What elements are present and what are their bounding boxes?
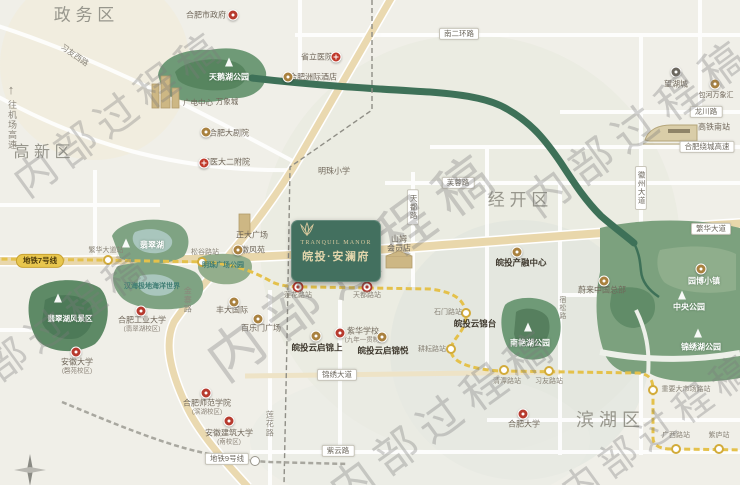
road-name-vertical: 莲花路 <box>265 411 274 438</box>
poi-label: 广电中心 <box>183 99 213 107</box>
institution-marker-icon <box>335 328 346 339</box>
poi-marker-icon <box>696 264 707 275</box>
poi-sublabel: (滨湖校区) <box>192 408 222 415</box>
hospital-marker-icon <box>331 52 342 63</box>
park-label: 锦绣湖公园 <box>681 344 721 353</box>
road-badge: 合肥绕城高速 <box>680 141 735 153</box>
poi-label: 安徽大学 <box>61 359 93 368</box>
road-name-vertical: 宿松路 <box>558 296 566 320</box>
poi-label: 合肥工业大学 <box>118 317 166 326</box>
institution-marker-icon <box>71 347 82 358</box>
station-label: 耕耘路站 <box>418 346 446 354</box>
road-name-vertical: 往机场高速 <box>6 100 16 150</box>
park-label: 中央公园 <box>673 304 705 313</box>
tree-icon <box>678 291 686 300</box>
tree-icon <box>694 329 702 338</box>
poi-label: 合肥师范学院 <box>183 400 231 409</box>
institution-marker-icon <box>201 388 212 399</box>
district-label: 政 务 区 <box>54 7 114 26</box>
metro-line9-badge: 地铁9号线 <box>205 453 249 465</box>
park-label: 翡翠湖 <box>140 242 164 251</box>
poi-label: 合肥洲际酒店 <box>289 74 337 83</box>
road-badge: 繁华大道 <box>691 223 731 235</box>
project-name-zh: 皖投·安澜府 <box>302 248 370 264</box>
project-logo-icon <box>292 221 322 237</box>
road-badge-vertical: 徽州大道 <box>635 166 647 210</box>
poi-label: 安徽建筑大学 <box>205 430 253 439</box>
poi-marker-icon <box>233 245 244 256</box>
station-label: 紫庐站 <box>709 432 730 440</box>
poi-sublabel: (磬苑校区) <box>62 367 92 374</box>
park-label: 天鹅湖公园 <box>209 74 249 83</box>
poi-marker-icon <box>377 332 388 343</box>
poi-label: 合肥大剧院 <box>209 130 249 139</box>
institution-marker-icon <box>136 306 147 317</box>
poi-label: 紫华学校 <box>347 328 379 337</box>
road-name: 习友西路 <box>58 43 89 69</box>
hospital-marker-icon <box>199 158 210 169</box>
poi-label: 明珠小学 <box>318 168 350 177</box>
poi-sublabel: (翡翠湖校区) <box>124 325 161 332</box>
poi-marker-icon <box>599 276 610 287</box>
poi-marker-icon <box>201 127 212 138</box>
poi-label: 万象城 <box>216 98 239 106</box>
poi-marker-icon <box>283 72 294 83</box>
project-poi-label: 皖投云启锦悦 <box>357 346 408 355</box>
watermark-text: 内部过程稿 <box>322 319 569 485</box>
poi-label: 省立医院 <box>301 54 333 63</box>
station-label: 石门路站 <box>434 309 462 317</box>
road-name: ↑ <box>8 83 15 97</box>
poi-sublabel: (南校区) <box>217 438 241 445</box>
road-name-vertical: 金寨路 <box>183 287 192 314</box>
location-map: TRANQUIL MANOR 皖投·安澜府 政 务 区高 新 区经 开 区滨 湖… <box>0 0 740 485</box>
project-poi-label: 皖投产融中心 <box>495 258 546 267</box>
poi-marker-icon <box>512 247 523 258</box>
road-badge: 锦绣大道 <box>317 369 357 381</box>
poi-label: 蔚来中国总部 <box>578 287 626 296</box>
poi-label: 合肥大学 <box>508 421 540 430</box>
institution-marker-icon <box>518 409 529 420</box>
road-badge: 南二环路 <box>439 28 479 40</box>
metro-line7-badge: 地铁7号线 <box>16 254 64 268</box>
park-label: 明珠广场公园 <box>202 262 244 270</box>
project-card: TRANQUIL MANOR 皖投·安澜府 <box>291 220 381 282</box>
poi-label: 徽风苑 <box>241 247 265 256</box>
poi-marker-icon <box>229 297 240 308</box>
institution-marker-icon <box>224 416 235 427</box>
poi-label: 合肥市政府 <box>186 12 226 21</box>
project-poi-label: 皖投云启锦上 <box>291 343 342 352</box>
poi-label: 正大广场 <box>236 232 268 241</box>
project-poi-label: 皖投云锦台 <box>454 319 497 328</box>
metro-logo-icon <box>250 456 260 466</box>
institution-marker-icon <box>228 10 239 21</box>
park-label: 园博小镇 <box>688 278 720 287</box>
project-name-en: TRANQUIL MANOR <box>300 240 371 246</box>
watermark-text: 内部过程稿 <box>5 22 234 206</box>
poi-label: 高铁南站 <box>698 124 730 133</box>
station-label: 松谷路站 <box>191 249 219 257</box>
